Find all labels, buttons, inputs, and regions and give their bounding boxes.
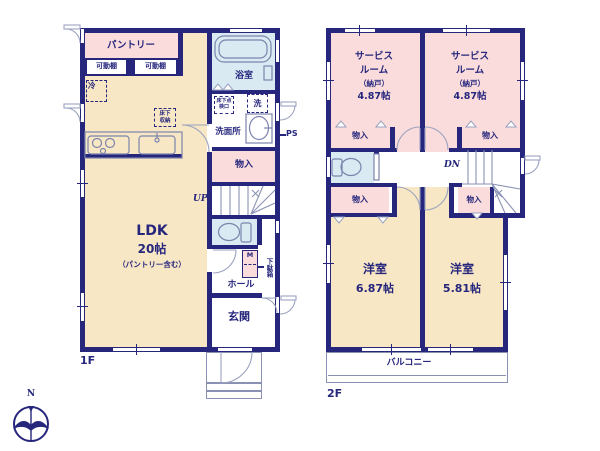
window — [275, 40, 280, 62]
service-room-right-line2: ルーム — [442, 66, 498, 76]
window — [275, 103, 280, 121]
window-tick — [359, 25, 360, 36]
movable-shelf-label: 可動棚 — [135, 63, 176, 71]
wall-segment — [390, 127, 395, 148]
bedroom-left-size: 6.87帖 — [349, 283, 401, 295]
underfloor-storage-label: 床下収納 — [159, 111, 171, 124]
wall-segment — [374, 152, 379, 160]
window — [326, 157, 331, 177]
wall-segment — [449, 213, 525, 218]
wall-segment — [449, 148, 520, 152]
wall-segment — [420, 33, 425, 152]
bedroom-left-doorway — [397, 187, 420, 217]
wall-segment — [207, 293, 262, 298]
window-tick — [517, 80, 528, 81]
underfloor-hatch-label: 床下点検口 — [217, 99, 232, 111]
front-door-opening — [218, 347, 252, 352]
pantry-label: パントリー — [95, 41, 167, 51]
wall-segment — [212, 147, 275, 151]
closet-label: 物入 — [330, 132, 390, 141]
service-room-right-size: 4.87帖 — [442, 92, 498, 102]
washroom-label: 洗面所 — [210, 128, 246, 137]
wall-segment — [207, 33, 212, 124]
toilet-1f-room — [212, 219, 257, 245]
washbasin-icon — [246, 114, 272, 143]
wall-segment — [331, 148, 397, 152]
hall-label: ホール — [223, 281, 259, 291]
counter-edge — [85, 154, 182, 158]
underfloor-storage: 床下収納 — [154, 108, 176, 127]
wall-segment — [178, 33, 183, 76]
window-tick — [77, 183, 88, 184]
door-swing — [213, 250, 236, 273]
window-tick — [77, 306, 88, 307]
window — [80, 29, 85, 43]
wall-segment — [257, 219, 262, 245]
meter-box-label: M — [243, 252, 257, 259]
window-tick — [391, 344, 392, 355]
toilet-2f-room — [331, 152, 374, 183]
wall-segment — [420, 187, 425, 347]
wall-segment — [207, 272, 212, 347]
shoe-cabinet-label: 下駄箱 — [263, 251, 272, 285]
washer-space: 洗 — [247, 94, 268, 113]
meter-box: M — [242, 250, 258, 278]
service-room-left-line2: ルーム — [346, 66, 402, 76]
window-tick — [323, 80, 334, 81]
wall-segment — [520, 28, 525, 218]
bath-label: 浴室 — [228, 72, 260, 82]
window-tick — [323, 263, 334, 264]
window — [275, 297, 280, 313]
closet-1f-label: 物入 — [228, 161, 260, 171]
service-room-left-line3: （納戸） — [346, 80, 402, 88]
window — [275, 221, 280, 233]
window-tick — [450, 344, 451, 355]
floor-1-label: 1F — [80, 355, 95, 367]
service-room-left-line1: サービス — [346, 52, 402, 62]
wall-segment — [212, 182, 275, 186]
service-room-left-size: 4.87帖 — [346, 92, 402, 102]
service-room-right-line1: サービス — [442, 52, 498, 62]
balcony-rail-line — [328, 375, 506, 376]
wall-segment — [212, 215, 275, 219]
ldk-size: 20帖 — [130, 243, 174, 256]
window — [80, 104, 85, 122]
wall-segment — [212, 245, 258, 249]
stairs-up-icon — [221, 186, 275, 215]
window — [520, 158, 525, 174]
balcony-label: バルコニー — [374, 359, 444, 369]
stairs-up-label: UP — [193, 195, 208, 205]
fridge-space: 冷 — [86, 80, 107, 102]
window-tick — [136, 344, 137, 355]
washer-label: 洗 — [254, 99, 262, 108]
bedroom-right-name: 洋室 — [442, 263, 482, 276]
closet-label: 物入 — [456, 196, 492, 204]
bedroom-right-doorway — [425, 187, 449, 217]
window — [230, 28, 262, 33]
window-tick — [466, 25, 467, 36]
ldk-note: （パントリー含む） — [104, 261, 200, 269]
closet-label: 物入 — [330, 196, 390, 205]
wall-segment — [331, 213, 393, 217]
movable-shelf-label: 可動棚 — [87, 63, 126, 71]
underfloor-hatch: 床下点検口 — [214, 96, 234, 114]
porch-step — [206, 391, 262, 399]
pipe-space-label: PS — [286, 130, 298, 139]
fridge-label: 冷 — [88, 82, 96, 91]
window-tick — [500, 282, 511, 283]
floor-plan: M 冷 床下収納 床下点検口 洗 パントリー — [0, 0, 600, 451]
floor-2-label: 2F — [327, 388, 342, 400]
stairs-down-label: DN — [444, 161, 460, 171]
wall-segment — [331, 183, 397, 187]
porch-step — [206, 383, 262, 391]
bedroom-right-size: 5.81帖 — [436, 283, 488, 295]
service-room-right-line3: （納戸） — [442, 80, 498, 88]
compass-north-label: N — [25, 390, 37, 400]
closet-label: 物入 — [461, 132, 519, 141]
entrance-porch — [206, 352, 262, 383]
ldk-name: LDK — [130, 224, 174, 239]
entrance-label: 玄関 — [223, 311, 255, 323]
compass-icon — [13, 406, 49, 441]
bedroom-left-name: 洋室 — [355, 263, 395, 276]
